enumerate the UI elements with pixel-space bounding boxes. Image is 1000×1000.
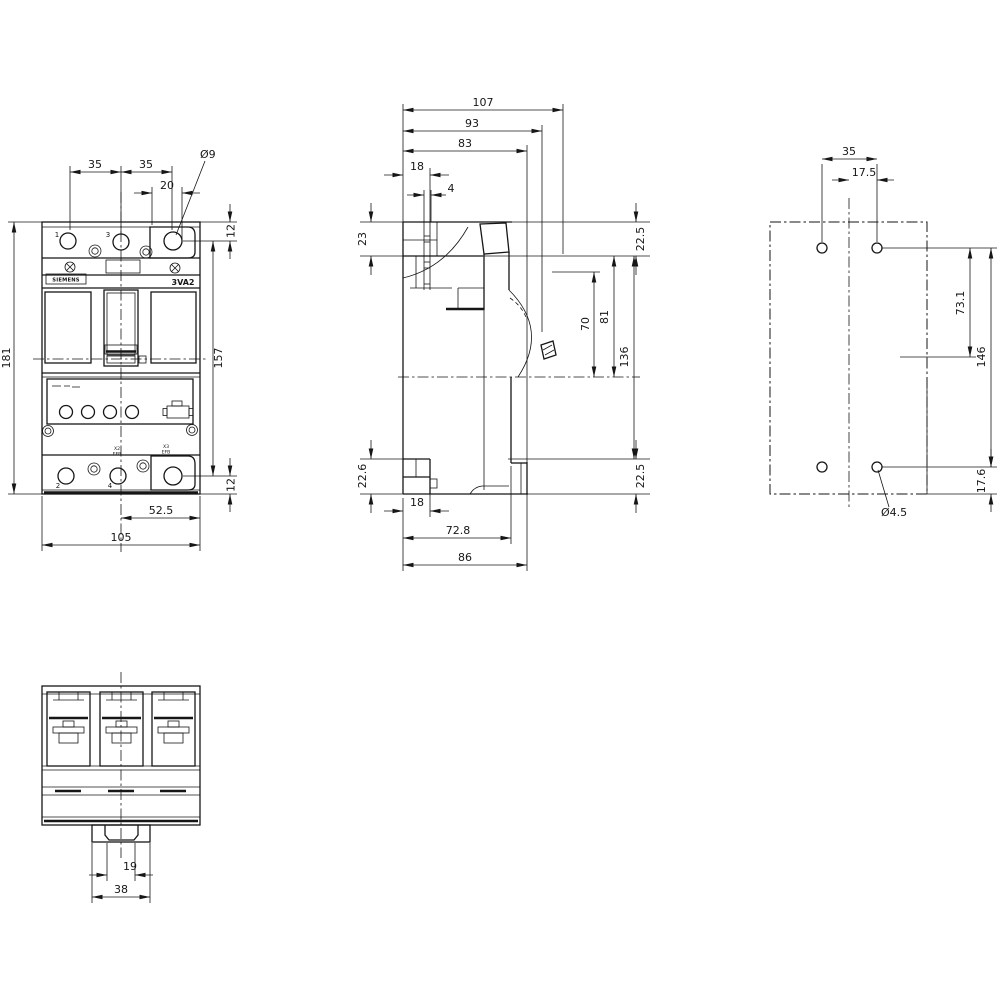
front-terminal-hole-1	[60, 233, 76, 249]
dim-drill-hole-pitch-h: 35	[842, 145, 856, 158]
side-escutcheon	[480, 223, 509, 254]
connector-x3-label: X3	[163, 444, 169, 450]
connector-x2-label: X2	[114, 446, 120, 452]
view-drilling-plan: 35 17.5 73.1 146 17.6 Ø4.5	[770, 145, 997, 519]
dim-side-top-zone-right: 22.5	[634, 227, 647, 252]
dim-side-handle-height: 81	[598, 310, 611, 324]
front-terminal-hole-2	[58, 468, 74, 484]
dim-side-depth-rail: 86	[458, 551, 472, 564]
dim-side-terminal-offset: 18	[410, 160, 424, 173]
dim-front-hole-pitch-v: 157	[212, 348, 225, 369]
model-label: 3VA2	[172, 278, 195, 287]
rating-label-marks	[52, 386, 80, 387]
pole-number-1: 1	[55, 231, 59, 239]
dim-side-slot-width: 4	[448, 182, 455, 195]
drawing-page: SIEMENS 3VA2 1 3 2 4 X2	[0, 0, 1000, 1000]
dim-side-rail-offset: 18	[410, 496, 424, 509]
dim-side-depth-handle: 93	[465, 117, 479, 130]
dim-bottom-tab-outer: 38	[114, 883, 128, 896]
dim-front-width: 105	[111, 531, 132, 544]
drill-hole-bottom-left	[817, 462, 827, 472]
dim-bottom-tab-inner: 19	[123, 860, 137, 873]
drill-hole-top-right	[872, 243, 882, 253]
pole-number-2: 2	[56, 482, 60, 490]
dim-front-pitch-a: 35	[88, 158, 102, 171]
dim-side-depth-base: 72.8	[446, 524, 471, 537]
dim-drill-hole-pitch-v: 146	[975, 347, 988, 368]
technical-drawing-canvas: SIEMENS 3VA2 1 3 2 4 X2	[0, 0, 1000, 1000]
view-front: SIEMENS 3VA2 1 3 2 4 X2	[0, 148, 238, 552]
dim-side-front-height: 136	[618, 347, 631, 368]
side-wire-curve	[403, 227, 468, 278]
view-bottom: 19 38	[42, 672, 200, 903]
front-cover-hole	[164, 232, 182, 250]
view-side: 107 93 83 18 4 23 22.5 22.6 22.5 70 81 1…	[356, 96, 650, 571]
dim-side-bottom-zone-right: 22.5	[634, 464, 647, 489]
dim-front-height: 181	[0, 348, 13, 369]
pole-number-4: 4	[108, 482, 113, 490]
dim-side-handle-travel: 70	[579, 317, 592, 331]
dim-side-bottom-zone-left: 22.6	[356, 464, 369, 489]
dim-side-depth-total: 107	[473, 96, 494, 109]
dim-side-depth-front: 83	[458, 137, 472, 150]
pole-number-3: 3	[106, 231, 110, 239]
dim-drill-bottom-offset: 17.6	[975, 469, 988, 494]
drill-plate-outline	[770, 222, 927, 494]
front-connector	[167, 406, 189, 418]
dim-side-top-zone-left: 23	[356, 232, 369, 246]
dim-front-half-width: 52.5	[149, 504, 174, 517]
drill-hole-top-left	[817, 243, 827, 253]
dim-front-bottom-hole-offset: 12	[225, 478, 238, 492]
dim-front-top-hole-offset: 12	[225, 224, 238, 238]
dim-drill-mid-offset: 73.1	[954, 291, 967, 316]
dim-front-cover-offset: 20	[160, 179, 174, 192]
dim-drill-half-pitch: 17.5	[852, 166, 877, 179]
side-handle-arc	[509, 290, 532, 377]
connector-x3-sub: EFB	[162, 450, 171, 456]
connector-x2-sub: EFB	[113, 452, 122, 458]
dim-front-hole-dia: Ø9	[200, 148, 216, 161]
front-terminal-hole-4	[110, 468, 126, 484]
brand-label: SIEMENS	[52, 278, 79, 284]
dim-drill-hole-dia: Ø4.5	[881, 506, 907, 519]
drill-hole-bottom-right	[872, 462, 882, 472]
dim-front-pitch-b: 35	[139, 158, 153, 171]
